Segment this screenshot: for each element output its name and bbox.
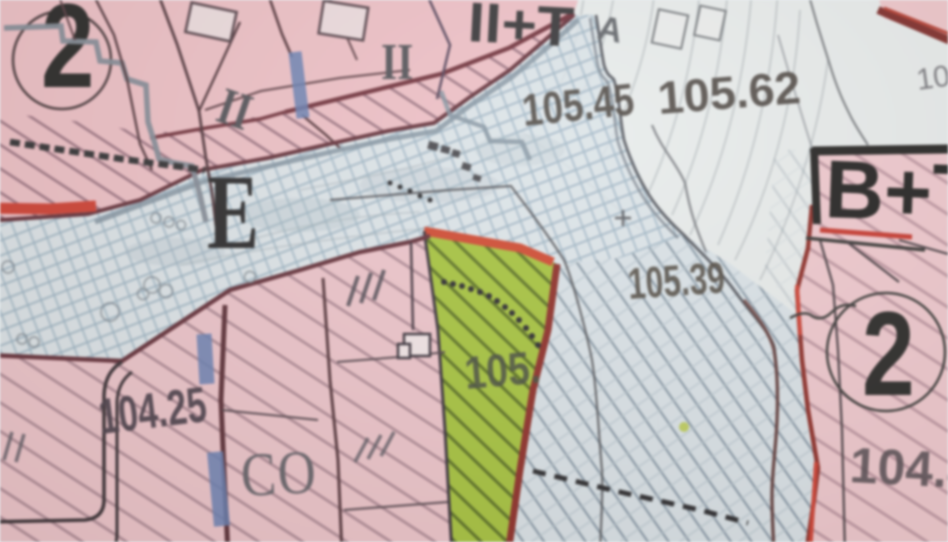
- svg-text:II: II: [381, 34, 413, 91]
- svg-text:105.: 105.: [462, 341, 542, 399]
- svg-text:2: 2: [41, 0, 94, 114]
- svg-text:CO: CO: [239, 438, 319, 510]
- svg-text:10: 10: [914, 60, 948, 97]
- svg-text:104.4: 104.4: [848, 437, 948, 499]
- svg-text:E: E: [207, 154, 259, 272]
- svg-text:2: 2: [862, 286, 915, 420]
- svg-text:B+T: B+T: [823, 144, 948, 240]
- svg-text:II+T: II+T: [466, 0, 575, 59]
- svg-text:105.39: 105.39: [626, 253, 726, 309]
